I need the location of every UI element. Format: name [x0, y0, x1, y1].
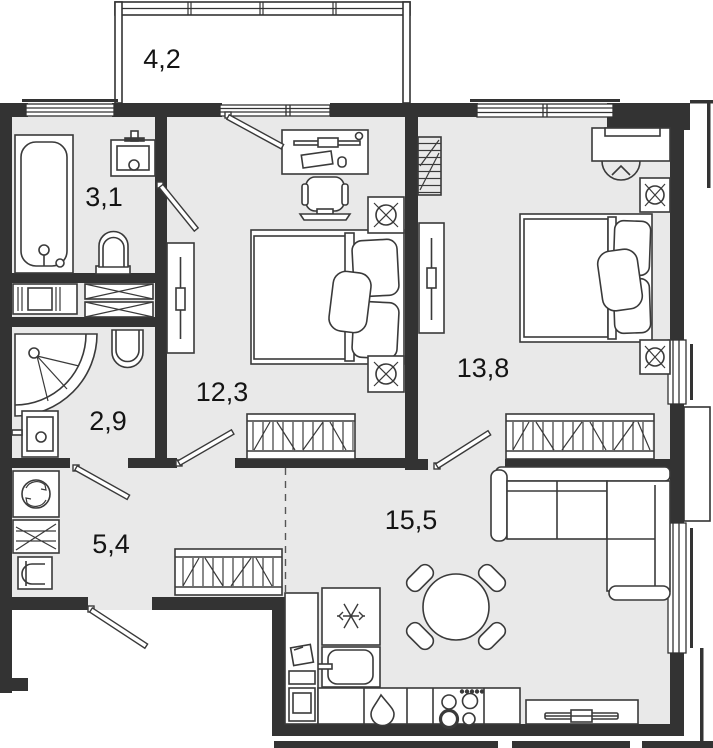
wardrobe-icon: [247, 414, 355, 459]
window-sill: [690, 528, 693, 648]
kitchen-column-icon: [285, 593, 318, 724]
window-icon: [26, 104, 114, 116]
desk-chair-icon: [300, 177, 350, 220]
toilet-icon: [112, 330, 143, 368]
room-label-balcony: 4,2: [143, 44, 181, 74]
room-label-bathroom: 3,1: [85, 182, 123, 212]
wall-bay: [684, 407, 710, 521]
outside-cutout: [0, 610, 272, 748]
nightstand-lamp-icon: [640, 178, 670, 212]
tv-stand-icon: [526, 700, 638, 724]
window-sill: [470, 99, 620, 102]
nightstand-lamp-icon: [368, 197, 404, 233]
room-label-shower-room: 2,9: [89, 406, 127, 436]
room-label-kitchen-living: 15,5: [385, 505, 438, 535]
boiler-icon: [18, 557, 52, 589]
double-bed-icon: [520, 214, 652, 342]
room-label-bedroom-1: 12,3: [196, 377, 249, 407]
fridge-snowflake-icon: [322, 588, 380, 645]
room-label-hallway: 5,4: [92, 529, 130, 559]
floor-plan-svg: 4,2 3,1 2,9 5,4 12,3 13,8 15,5: [0, 0, 713, 748]
double-bed-icon: [251, 230, 404, 364]
window-icon: [477, 104, 613, 117]
window-sill: [22, 99, 118, 102]
floor-plan-page: 4,2 3,1 2,9 5,4 12,3 13,8 15,5: [0, 0, 713, 748]
desk-icon: [282, 130, 368, 174]
wardrobe-icon: [506, 414, 654, 459]
shelf-icon: [13, 520, 59, 553]
nightstand-lamp-icon: [368, 356, 404, 392]
mirror-panel-icon: [167, 243, 194, 353]
room-label-bedroom-2: 13,8: [457, 353, 510, 383]
nightstand-lamp-icon: [640, 340, 670, 374]
wardrobe-icon: [175, 549, 282, 595]
window-sill: [690, 344, 693, 400]
balcony-window-icon: [220, 105, 330, 116]
kitchen-sink-icon: [316, 647, 380, 687]
bottom-cut-band: [274, 741, 713, 748]
washing-machine-icon: [13, 471, 59, 517]
mirror-panel-icon: [419, 223, 444, 333]
toilet-icon: [96, 232, 130, 275]
kitchen-counter-icon: [318, 688, 520, 728]
radiator-icon: [418, 137, 441, 195]
bathtub-icon: [15, 135, 73, 273]
